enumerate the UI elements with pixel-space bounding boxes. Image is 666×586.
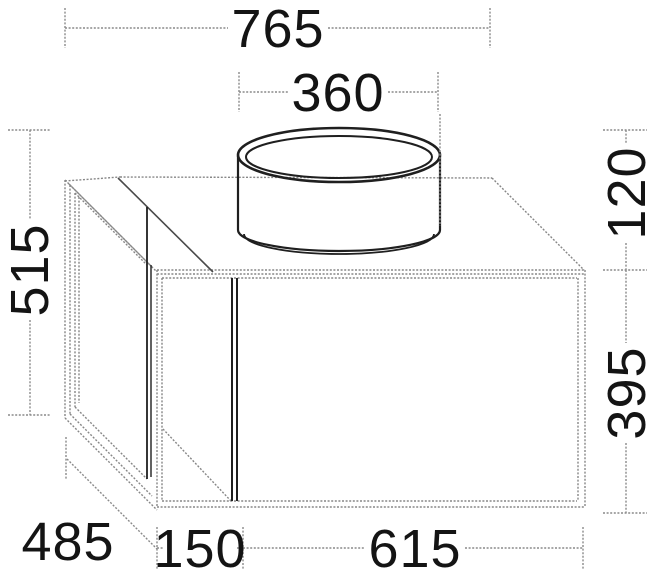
dimension-labels: 765 360 515 120 395 485 150 615 xyxy=(0,0,657,579)
basin-top-rim-inner xyxy=(246,136,432,178)
side-frame-bottom-edge-inner xyxy=(75,407,147,479)
label-basin-height: 120 xyxy=(597,146,657,239)
object-interior-lines xyxy=(118,178,213,272)
shelf-interior-top-diagonal xyxy=(118,178,213,272)
label-shelf-width: 150 xyxy=(153,519,246,579)
side-frame-bottom-edge-2 xyxy=(70,414,152,496)
label-overall-height: 515 xyxy=(0,223,60,316)
label-body-height: 395 xyxy=(597,346,657,439)
label-basin-diameter: 360 xyxy=(291,63,384,123)
drawing-page: 765 360 515 120 395 485 150 615 xyxy=(0,0,666,586)
label-depth: 485 xyxy=(21,512,114,572)
label-overall-width: 765 xyxy=(231,0,324,59)
side-frame-bottom-edge-outer xyxy=(65,418,157,510)
object-light-lines xyxy=(65,177,585,510)
object-dark-lines xyxy=(147,128,440,501)
label-body-width: 615 xyxy=(368,519,461,579)
side-frame-top-edge-inner xyxy=(75,193,147,265)
shelf-front-opening-diagonal xyxy=(163,429,231,501)
top-face-right-depth-edge xyxy=(492,178,584,270)
top-face-back-left-sliver xyxy=(65,177,120,181)
vanity-technical-drawing: 765 360 515 120 395 485 150 615 xyxy=(0,0,666,586)
